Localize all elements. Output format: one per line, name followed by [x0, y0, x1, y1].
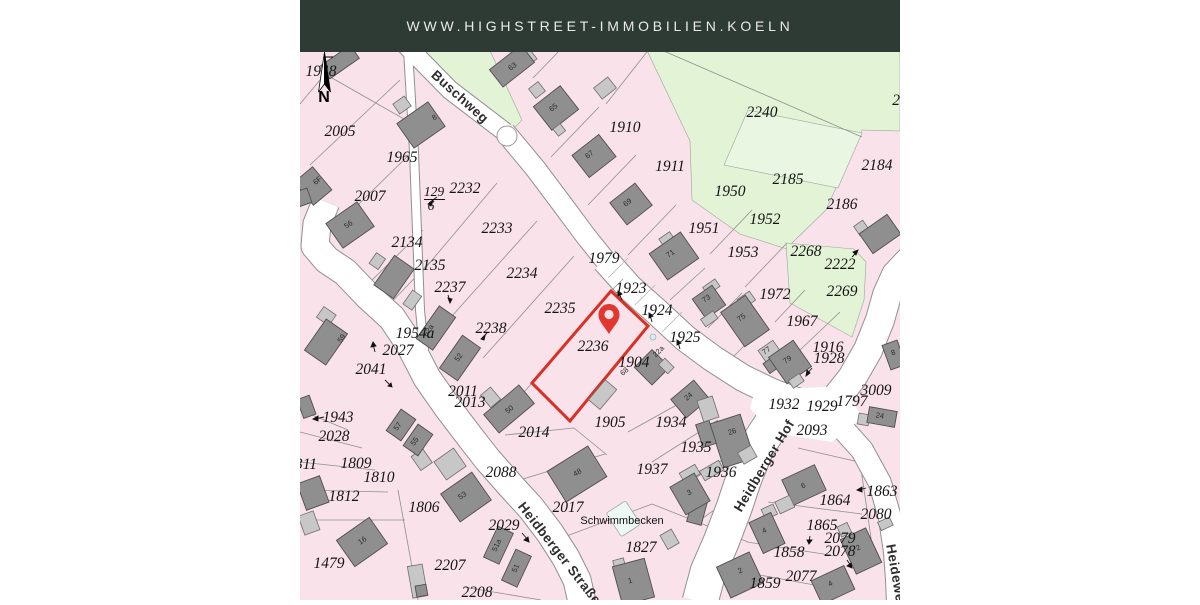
svg-text:2235: 2235: [545, 300, 576, 317]
svg-text:N: N: [318, 89, 330, 106]
svg-text:2186: 2186: [827, 196, 858, 213]
svg-text:Schwimmbecken: Schwimmbecken: [580, 515, 663, 527]
svg-text:1950: 1950: [715, 183, 746, 200]
svg-text:2078: 2078: [825, 543, 856, 560]
svg-text:2237: 2237: [435, 279, 467, 296]
svg-text:2134: 2134: [392, 234, 423, 251]
svg-text:2207: 2207: [435, 557, 467, 574]
svg-text:2077: 2077: [786, 568, 818, 585]
svg-text:2185: 2185: [773, 171, 804, 188]
svg-text:1951: 1951: [689, 220, 720, 237]
svg-text:1479: 1479: [314, 555, 345, 572]
svg-text:2080: 2080: [861, 506, 892, 523]
svg-text:2184: 2184: [862, 157, 893, 174]
svg-text:1925: 1925: [670, 329, 701, 346]
svg-text:2007: 2007: [355, 188, 387, 205]
svg-text:2017: 2017: [553, 499, 585, 516]
svg-text:2028: 2028: [319, 428, 350, 445]
svg-text:1863: 1863: [867, 483, 898, 500]
svg-text:311: 311: [300, 456, 317, 473]
svg-text:1936: 1936: [706, 464, 737, 481]
svg-text:1812: 1812: [329, 488, 360, 505]
svg-text:2222: 2222: [825, 256, 856, 273]
svg-text:1943: 1943: [323, 409, 354, 426]
svg-text:1965: 1965: [387, 149, 418, 166]
svg-text:21: 21: [892, 92, 900, 109]
svg-text:1864: 1864: [820, 492, 851, 509]
svg-text:2236: 2236: [578, 338, 609, 355]
svg-text:1924: 1924: [642, 302, 673, 319]
svg-text:1806: 1806: [409, 499, 440, 516]
svg-text:1935: 1935: [681, 439, 712, 456]
svg-text:1953: 1953: [728, 244, 759, 261]
svg-text:2005: 2005: [325, 123, 356, 140]
svg-text:2234: 2234: [507, 265, 538, 282]
svg-text:1932: 1932: [769, 396, 800, 413]
svg-text:2027: 2027: [383, 342, 415, 359]
svg-text:1911: 1911: [655, 158, 685, 175]
svg-text:1797: 1797: [837, 393, 869, 410]
svg-text:1827: 1827: [626, 539, 658, 556]
svg-text:1972: 1972: [760, 286, 791, 303]
svg-text:1937: 1937: [637, 461, 669, 478]
svg-text:2268: 2268: [791, 243, 822, 260]
svg-text:1929: 1929: [807, 398, 838, 415]
svg-text:2240: 2240: [747, 104, 778, 121]
svg-text:1952: 1952: [750, 211, 781, 228]
svg-text:1928: 1928: [814, 350, 845, 367]
svg-text:2041: 2041: [356, 361, 387, 378]
svg-text:2232: 2232: [450, 180, 481, 197]
svg-text:1979: 1979: [589, 250, 620, 267]
svg-text:1910: 1910: [610, 119, 641, 136]
svg-text:2093: 2093: [797, 422, 828, 439]
svg-text:1810: 1810: [364, 469, 395, 486]
svg-text:1934: 1934: [656, 414, 687, 431]
svg-text:1858: 1858: [774, 544, 805, 561]
svg-text:2238: 2238: [476, 320, 507, 337]
svg-text:2088: 2088: [486, 464, 517, 481]
svg-text:1967: 1967: [787, 313, 819, 330]
svg-text:2013: 2013: [455, 394, 486, 411]
svg-text:2014: 2014: [519, 424, 550, 441]
svg-text:1904: 1904: [619, 354, 650, 371]
svg-text:2269: 2269: [827, 283, 858, 300]
svg-text:2029: 2029: [489, 517, 520, 534]
svg-text:2208: 2208: [462, 584, 493, 600]
svg-text:129: 129: [424, 184, 445, 199]
svg-text:2233: 2233: [482, 220, 513, 237]
svg-text:24: 24: [875, 410, 885, 420]
svg-text:1905: 1905: [595, 414, 626, 431]
svg-text:2135: 2135: [415, 257, 446, 274]
svg-text:1859: 1859: [750, 575, 781, 592]
svg-text:1954a: 1954a: [396, 325, 435, 342]
